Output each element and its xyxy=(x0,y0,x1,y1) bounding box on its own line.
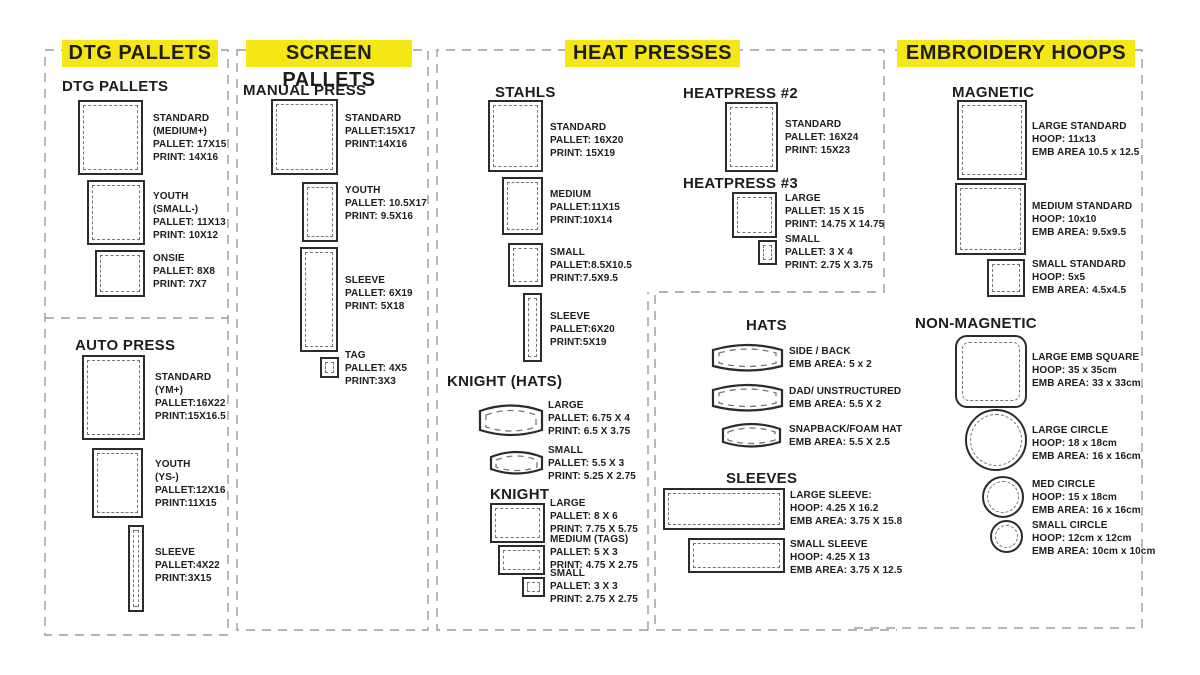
knight-hat-small-shape xyxy=(488,445,545,480)
magnetic-large-hoop-shape xyxy=(957,100,1027,180)
section-header-screen: SCREEN PALLETS xyxy=(246,40,412,67)
stahls-standard-pallet-shape xyxy=(488,100,543,172)
nonmag-large-circle-hoop-shape xyxy=(965,409,1027,471)
emb-area-outline xyxy=(970,414,1022,466)
print-area-outline xyxy=(763,245,772,260)
manual-youth-label: YOUTH PALLET: 10.5X17 PRINT: 9.5X16 xyxy=(345,184,427,223)
magnetic-medium-hoop-shape xyxy=(955,183,1026,255)
manual-tag-label: TAG PALLET: 4X5 PRINT:3X3 xyxy=(345,349,407,388)
group-title-knight: KNIGHT xyxy=(490,486,549,503)
print-area-outline xyxy=(493,105,538,167)
print-area-outline xyxy=(305,252,333,347)
nonmag-square-hoop-shape xyxy=(955,335,1027,408)
knight-small-label: SMALL PALLET: 3 X 3 PRINT: 2.75 X 2.75 xyxy=(550,567,638,606)
hat-side-back-shape xyxy=(710,338,785,377)
knight-hat-large-label: LARGE PALLET: 6.75 X 4 PRINT: 6.5 X 3.75 xyxy=(548,399,630,438)
print-area-outline xyxy=(325,362,334,373)
group-title-manual-press: MANUAL PRESS xyxy=(243,82,366,99)
magnetic-small-hoop-shape xyxy=(987,259,1025,297)
group-title-sleeves: SLEEVES xyxy=(726,470,797,487)
manual-tag-pallet-shape xyxy=(320,357,339,378)
print-area-outline xyxy=(83,105,138,170)
manual-sleeve-label: SLEEVE PALLET: 6X19 PRINT: 5X18 xyxy=(345,274,413,313)
dtg-onsie-label: ONSIE PALLET: 8X8 PRINT: 7X7 xyxy=(153,252,215,291)
stahls-small-label: SMALL PALLET:8.5X10.5 PRINT:7.5X9.5 xyxy=(550,246,632,285)
print-area-outline xyxy=(513,248,538,282)
print-area-outline xyxy=(276,104,333,170)
print-area-outline xyxy=(97,453,138,513)
stahls-medium-pallet-shape xyxy=(502,177,543,235)
stahls-sleeve-label: SLEEVE PALLET:6X20 PRINT:5X19 xyxy=(550,310,615,349)
group-title-hats: HATS xyxy=(746,317,787,334)
sleeve-small-hoop-shape xyxy=(688,538,785,573)
print-area-outline xyxy=(87,360,140,435)
group-title-magnetic: MAGNETIC xyxy=(952,84,1034,101)
dtg-standard-pallet-shape xyxy=(78,100,143,175)
heatpress2-standard-label: STANDARD PALLET: 16X24 PRINT: 15X23 xyxy=(785,118,858,157)
print-area-outline xyxy=(133,530,139,607)
manual-sleeve-pallet-shape xyxy=(300,247,338,352)
manual-youth-pallet-shape xyxy=(302,182,338,242)
heatpress3-small-label: SMALL PALLET: 3 X 4 PRINT: 2.75 X 3.75 xyxy=(785,233,873,272)
stahls-sleeve-pallet-shape xyxy=(523,293,542,362)
group-title-auto-press: AUTO PRESS xyxy=(75,337,175,354)
emb-area-outline xyxy=(668,493,780,525)
nonmag-square-label: LARGE EMB SQUARE HOOP: 35 x 35cm EMB ARE… xyxy=(1032,351,1141,390)
emb-area-outline xyxy=(992,264,1020,292)
hat-dad-label: DAD/ UNSTRUCTURED EMB AREA: 5.5 X 2 xyxy=(789,385,901,411)
group-title-non-magnetic: NON-MAGNETIC xyxy=(915,315,1037,332)
print-area-outline xyxy=(528,298,537,357)
auto-standard-pallet-shape xyxy=(82,355,145,440)
dtg-standard-label: STANDARD (MEDIUM+) PALLET: 17X15 PRINT: … xyxy=(153,112,226,164)
print-area-outline xyxy=(100,255,140,292)
auto-sleeve-pallet-shape xyxy=(128,525,144,612)
knight-medium-pallet-shape xyxy=(498,545,545,575)
knight-hat-small-label: SMALL PALLET: 5.5 X 3 PRINT: 5.25 X 2.75 xyxy=(548,444,636,483)
nonmag-med-circle-label: MED CIRCLE HOOP: 15 x 18cm EMB AREA: 16 … xyxy=(1032,478,1141,517)
emb-area-outline xyxy=(962,342,1020,401)
equipment-size-chart: DTG PALLETS SCREEN PALLETS HEAT PRESSES … xyxy=(0,0,1200,675)
print-area-outline xyxy=(495,508,540,538)
print-area-outline xyxy=(307,187,333,237)
print-area-outline xyxy=(730,107,773,167)
auto-sleeve-label: SLEEVE PALLET:4X22 PRINT:3X15 xyxy=(155,546,220,585)
knight-large-pallet-shape xyxy=(490,503,545,543)
print-area-outline xyxy=(507,182,538,230)
sleeve-small-label: SMALL SLEEVE HOOP: 4.25 X 13 EMB AREA: 3… xyxy=(790,538,902,577)
group-title-heatpress2: HEATPRESS #2 xyxy=(683,85,798,102)
auto-standard-label: STANDARD (YM+) PALLET:16X22 PRINT:15X16.… xyxy=(155,371,226,423)
emb-area-outline xyxy=(995,525,1018,548)
magnetic-large-label: LARGE STANDARD HOOP: 11x13 EMB AREA 10.5… xyxy=(1032,120,1139,159)
stahls-small-pallet-shape xyxy=(508,243,543,287)
nonmag-small-circle-hoop-shape xyxy=(990,520,1023,553)
section-header-dtg: DTG PALLETS xyxy=(62,40,218,67)
emb-area-outline xyxy=(693,543,780,568)
nonmag-large-circle-label: LARGE CIRCLE HOOP: 18 x 18cm EMB AREA: 1… xyxy=(1032,424,1141,463)
section-header-embroidery: EMBROIDERY HOOPS xyxy=(897,40,1135,67)
knight-hat-large-shape xyxy=(477,398,545,442)
emb-area-outline xyxy=(987,481,1019,513)
emb-area-outline xyxy=(962,105,1022,175)
stahls-medium-label: MEDIUM PALLET:11X15 PRINT:10X14 xyxy=(550,188,620,227)
dtg-youth-pallet-shape xyxy=(87,180,145,245)
hat-side-back-label: SIDE / BACK EMB AREA: 5 x 2 xyxy=(789,345,872,371)
manual-standard-pallet-shape xyxy=(271,99,338,175)
heatpress3-large-label: LARGE PALLET: 15 X 15 PRINT: 14.75 X 14.… xyxy=(785,192,884,231)
auto-youth-pallet-shape xyxy=(92,448,143,518)
stahls-standard-label: STANDARD PALLET: 16X20 PRINT: 15X19 xyxy=(550,121,623,160)
sleeve-large-hoop-shape xyxy=(663,488,785,530)
print-area-outline xyxy=(92,185,140,240)
heatpress3-large-pallet-shape xyxy=(732,192,777,238)
heatpress2-standard-pallet-shape xyxy=(725,102,778,172)
group-title-heatpress3: HEATPRESS #3 xyxy=(683,175,798,192)
magnetic-medium-label: MEDIUM STANDARD HOOP: 10x10 EMB AREA: 9.… xyxy=(1032,200,1132,239)
knight-small-pallet-shape xyxy=(522,577,545,597)
nonmag-med-circle-hoop-shape xyxy=(982,476,1024,518)
print-area-outline xyxy=(737,197,772,233)
dtg-youth-label: YOUTH (SMALL-) PALLET: 11X13 PRINT: 10X1… xyxy=(153,190,226,242)
group-title-knight-hats: KNIGHT (HATS) xyxy=(447,373,562,390)
dtg-onsie-pallet-shape xyxy=(95,250,145,297)
manual-standard-label: STANDARD PALLET:15X17 PRINT:14X16 xyxy=(345,112,415,151)
section-header-heat: HEAT PRESSES xyxy=(565,40,740,67)
heatpress3-small-pallet-shape xyxy=(758,240,777,265)
sleeve-large-label: LARGE SLEEVE: HOOP: 4.25 X 16.2 EMB AREA… xyxy=(790,489,902,528)
print-area-outline xyxy=(503,550,540,570)
hat-snapback-shape xyxy=(720,417,783,453)
auto-youth-label: YOUTH (YS-) PALLET:12X16 PRINT:11X15 xyxy=(155,458,225,510)
nonmag-small-circle-label: SMALL CIRCLE HOOP: 12cm x 12cm EMB AREA:… xyxy=(1032,519,1155,558)
hat-snapback-label: SNAPBACK/FOAM HAT EMB AREA: 5.5 X 2.5 xyxy=(789,423,902,449)
group-title-dtg-pallets: DTG PALLETS xyxy=(62,78,168,95)
knight-large-label: LARGE PALLET: 8 X 6 PRINT: 7.75 X 5.75 xyxy=(550,497,638,536)
hat-dad-shape xyxy=(710,378,785,417)
group-title-stahls: STAHLS xyxy=(495,84,556,101)
print-area-outline xyxy=(527,582,540,592)
emb-area-outline xyxy=(960,188,1021,250)
magnetic-small-label: SMALL STANDARD HOOP: 5x5 EMB AREA: 4.5x4… xyxy=(1032,258,1126,297)
